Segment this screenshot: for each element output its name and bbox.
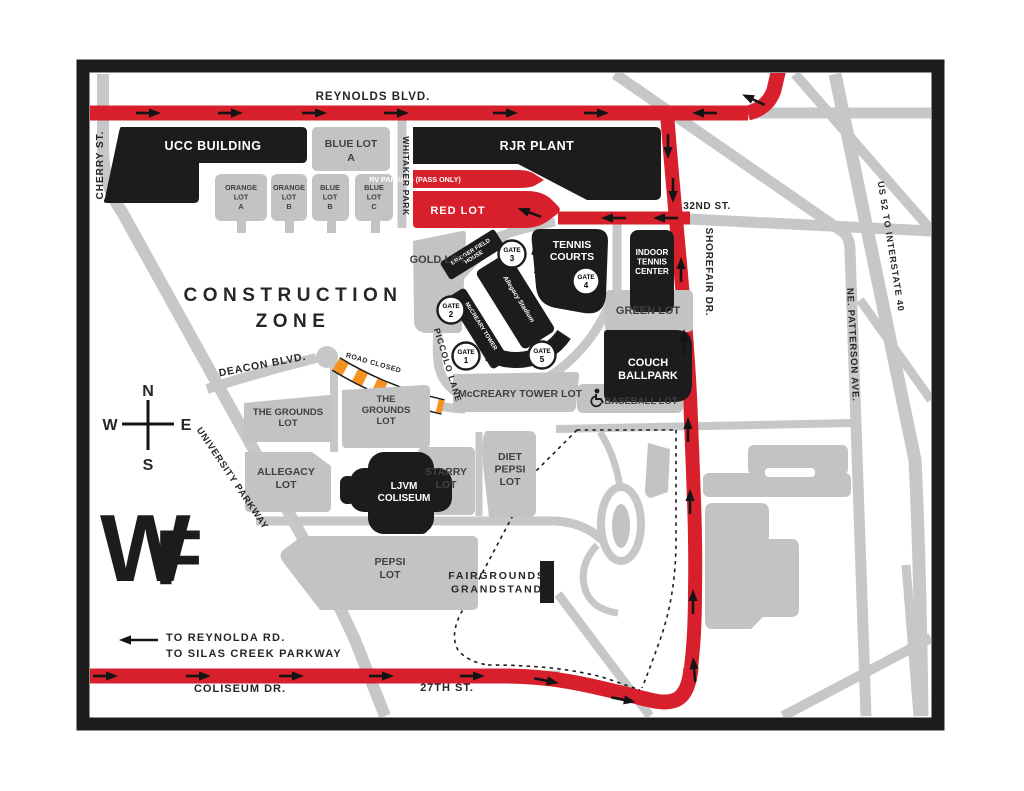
lot-orange-b-stem [285, 221, 294, 233]
lot-orange-a-stem [237, 221, 246, 233]
campus-parking-map: BRIDGER FIELDHOUSE McCREARY TOWER Allega… [0, 0, 1024, 791]
route-coliseum-27th-red [90, 668, 691, 702]
gate-4-label: GATE [577, 274, 595, 281]
fairgrounds-block-se [705, 503, 799, 629]
label-shorefair-dr: SHOREFAIR DR. [703, 228, 714, 317]
gate-3-number: 3 [510, 254, 515, 263]
west-arrow-icon [119, 635, 131, 644]
gate-1-number: 1 [464, 356, 469, 365]
compass: N S W E [102, 383, 191, 474]
fairgrounds-loop-median [612, 504, 630, 548]
gate-5: GATE 5 [529, 342, 556, 369]
label-32nd-st: 32ND ST. [683, 201, 731, 212]
label-reynolds-blvd: REYNOLDS BLVD. [316, 91, 431, 103]
label-27th-st: 27TH ST. [420, 682, 474, 694]
gate-4: GATE 4 [573, 268, 600, 295]
label-fairgrounds-grandstand: FAIRGROUNDSGRANDSTAND [448, 570, 545, 596]
gate-5-number: 5 [540, 355, 545, 364]
compass-w: W [102, 417, 118, 434]
gate-2-number: 2 [449, 310, 454, 319]
road-loop-stem [600, 432, 620, 487]
gate-2-label: GATE [442, 303, 460, 310]
compass-n: N [142, 383, 154, 400]
label-baseball-lot: BASEBALL LOT [604, 396, 677, 407]
lot-blue-c-stem [371, 221, 380, 233]
label-mccreary-lot: McCREARY TOWER LOT [458, 388, 583, 400]
gate-1: GATE 1 [453, 343, 480, 370]
label-cherry-st: CHERRY ST. [95, 131, 106, 200]
label-coliseum-dr: COLISEUM DR. [194, 683, 286, 695]
building-grandstand [540, 561, 554, 603]
label-to-reynolda: TO REYNOLDA RD. [166, 632, 285, 644]
gate-1-label: GATE [457, 349, 475, 356]
label-to-silas: TO SILAS CREEK PARKWAY [166, 648, 342, 660]
gate-2: GATE 2 [438, 297, 465, 324]
label-green-lot: GREEN LOT [616, 305, 680, 317]
compass-s: S [143, 457, 154, 474]
to-reynolda-note: TO REYNOLDA RD. TO SILAS CREEK PARKWAY [119, 632, 342, 660]
wf-logo: W F [100, 495, 203, 602]
accessible-icon-head [595, 389, 600, 394]
label-gold-lot: GOLD LOT [410, 254, 467, 266]
label-tennis-courts: TENNISCOURTS [550, 239, 594, 263]
gate-4-number: 4 [584, 281, 589, 290]
label-construction-zone: CONSTRUCTIONZONE [183, 285, 402, 332]
label-indoor-tennis: INDOORTENNISCENTER [635, 248, 669, 276]
fairgrounds-block-small [645, 443, 670, 498]
gate-5-label: GATE [533, 348, 551, 355]
label-ucc: UCC BUILDING [165, 139, 262, 153]
gate-3: GATE 3 [499, 241, 526, 268]
building-rjr-plant [413, 127, 661, 200]
label-rjr: RJR PLANT [500, 139, 575, 153]
label-whitaker-park: WHITAKER PARK [401, 136, 411, 216]
label-red-lot: RED LOT [430, 205, 485, 217]
fairgrounds-block-slot [765, 468, 815, 477]
road-32nd-st [688, 219, 931, 231]
road-fairgrounds-north [556, 423, 853, 429]
compass-e: E [181, 417, 192, 434]
wf-logo-f: F [155, 513, 203, 601]
gate-3-label: GATE [503, 247, 521, 254]
map-canvas: BRIDGER FIELDHOUSE McCREARY TOWER Allega… [0, 0, 1024, 791]
lot-blue-b-stem [327, 221, 336, 233]
